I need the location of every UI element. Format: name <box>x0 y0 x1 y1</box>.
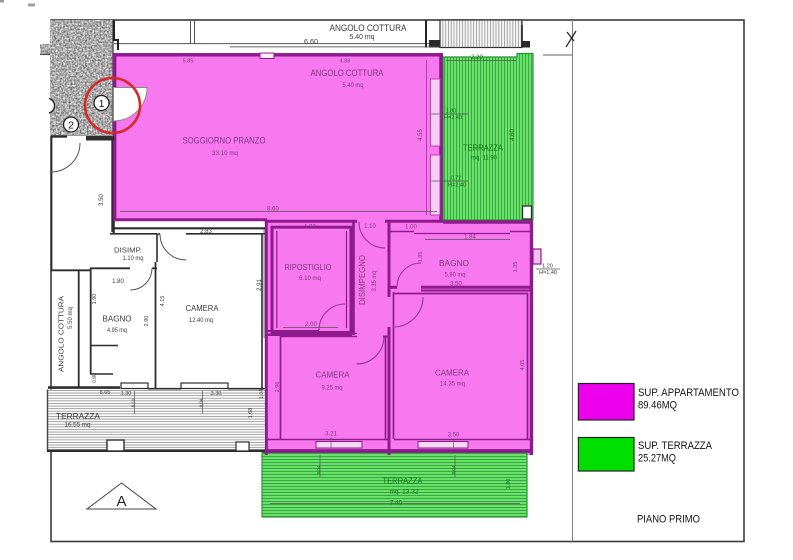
svg-text:4.15: 4.15 <box>160 296 166 307</box>
svg-text:1.84: 1.84 <box>464 235 476 241</box>
svg-text:TERRAZZA: TERRAZZA <box>463 143 503 153</box>
svg-text:0.90: 0.90 <box>92 373 98 383</box>
svg-text:H=1.40: H=1.40 <box>539 270 557 276</box>
svg-text:1: 1 <box>99 98 105 110</box>
svg-text:5.40 mq: 5.40 mq <box>350 34 375 41</box>
svg-text:TERRAZZA: TERRAZZA <box>56 411 100 421</box>
svg-text:A: A <box>116 493 126 510</box>
svg-text:8.04: 8.04 <box>451 465 456 474</box>
svg-text:1.00: 1.00 <box>405 225 417 231</box>
svg-text:2.20: 2.20 <box>471 55 483 61</box>
svg-text:2.96: 2.96 <box>275 382 281 393</box>
svg-text:DISIMP.: DISIMP. <box>114 246 142 255</box>
svg-text:BAGNO: BAGNO <box>103 315 132 324</box>
svg-text:CAMERA: CAMERA <box>186 304 220 313</box>
svg-text:12.40 mq: 12.40 mq <box>189 317 213 324</box>
svg-text:CAMERA: CAMERA <box>435 369 470 378</box>
svg-text:1.35: 1.35 <box>513 262 519 273</box>
svg-text:5.50 mq: 5.50 mq <box>68 307 74 329</box>
svg-text:1.93: 1.93 <box>304 225 316 231</box>
svg-text:6.60: 6.60 <box>304 39 318 46</box>
svg-text:14.35 mq: 14.35 mq <box>440 381 465 388</box>
svg-text:1.04: 1.04 <box>259 389 265 399</box>
svg-text:H=2.40: H=2.40 <box>444 115 462 121</box>
svg-text:0.72: 0.72 <box>451 176 462 182</box>
svg-text:8.65: 8.65 <box>100 390 111 396</box>
svg-text:3.50: 3.50 <box>448 433 460 439</box>
svg-text:2.91: 2.91 <box>257 279 263 291</box>
svg-text:SOGGIORNO PRANZO: SOGGIORNO PRANZO <box>183 136 266 146</box>
svg-text:2.00: 2.00 <box>305 322 317 328</box>
svg-text:2.83: 2.83 <box>200 229 212 235</box>
svg-text:1.20: 1.20 <box>542 264 553 270</box>
svg-text:5.85: 5.85 <box>183 59 194 65</box>
svg-text:SUP. APPARTAMENTO: SUP. APPARTAMENTO <box>638 387 739 399</box>
svg-text:25.27MQ: 25.27MQ <box>638 453 676 465</box>
svg-text:4.55: 4.55 <box>418 129 424 141</box>
svg-text:1.80: 1.80 <box>112 279 124 285</box>
svg-text:3.30: 3.30 <box>211 391 222 397</box>
svg-text:ANGOLO COTTURA: ANGOLO COTTURA <box>59 296 66 372</box>
svg-text:ANGOLO COTTURA: ANGOLO COTTURA <box>330 23 408 34</box>
svg-text:9.25 mq: 9.25 mq <box>322 385 343 392</box>
svg-text:BAGNO: BAGNO <box>439 259 469 268</box>
svg-text:5.90 mq: 5.90 mq <box>445 272 466 279</box>
svg-text:RIPOSTIGLIO: RIPOSTIGLIO <box>285 263 332 272</box>
svg-text:8.04: 8.04 <box>316 465 321 474</box>
svg-text:8.60: 8.60 <box>267 207 279 213</box>
svg-text:16.55 mq: 16.55 mq <box>65 422 91 429</box>
svg-text:4.95 mq: 4.95 mq <box>107 327 127 334</box>
svg-text:PIANO PRIMO: PIANO PRIMO <box>637 514 700 526</box>
svg-text:ANGOLO COTTURA: ANGOLO COTTURA <box>311 68 384 78</box>
svg-text:3.21: 3.21 <box>325 432 337 438</box>
svg-text:DISIMPEGNO: DISIMPEGNO <box>358 255 367 305</box>
svg-text:3.50: 3.50 <box>99 194 105 206</box>
svg-text:3.35 mq: 3.35 mq <box>371 270 378 291</box>
svg-text:7.40: 7.40 <box>390 501 402 507</box>
svg-text:8.04: 8.04 <box>199 398 204 407</box>
svg-text:1.30: 1.30 <box>121 391 132 397</box>
svg-text:4.60: 4.60 <box>510 129 516 141</box>
svg-text:mq. 11.90: mq. 11.90 <box>471 156 498 162</box>
svg-text:1.10 mq: 1.10 mq <box>123 256 144 262</box>
svg-text:3.50: 3.50 <box>450 282 462 288</box>
svg-text:33.10 mq: 33.10 mq <box>212 150 238 157</box>
svg-text:1.80: 1.80 <box>446 109 457 115</box>
svg-text:1.85: 1.85 <box>418 252 424 263</box>
svg-text:1.68: 1.68 <box>248 408 254 419</box>
svg-text:1.90: 1.90 <box>92 294 98 305</box>
svg-text:mq. 13.32: mq. 13.32 <box>390 490 420 496</box>
svg-text:4.88: 4.88 <box>340 59 351 65</box>
svg-text:TERRAZZA: TERRAZZA <box>383 476 423 486</box>
svg-text:H=2.40: H=2.40 <box>448 183 466 189</box>
svg-text:6.10 mq: 6.10 mq <box>299 275 321 282</box>
svg-text:1.80: 1.80 <box>506 479 512 490</box>
svg-text:1.10: 1.10 <box>364 224 376 230</box>
svg-text:CAMERA: CAMERA <box>316 371 351 380</box>
svg-text:2.90: 2.90 <box>144 316 150 327</box>
svg-text:SUP. TERRAZZA: SUP. TERRAZZA <box>638 440 713 452</box>
svg-text:89.46MQ: 89.46MQ <box>638 400 677 412</box>
svg-text:5.40 mq: 5.40 mq <box>343 82 364 89</box>
svg-text:8.10: 8.10 <box>131 398 136 407</box>
svg-text:2: 2 <box>68 119 74 131</box>
svg-text:4.05: 4.05 <box>520 360 526 371</box>
